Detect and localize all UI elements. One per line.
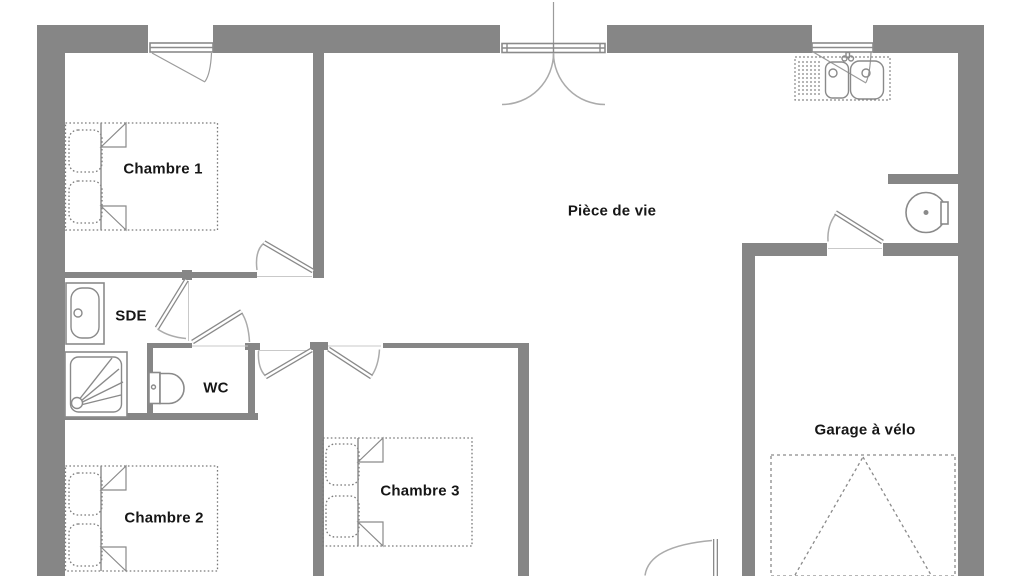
door-swing-arc xyxy=(158,329,187,339)
door-swing-arc xyxy=(242,313,250,343)
pillow xyxy=(69,130,102,172)
wall-segment xyxy=(607,25,812,53)
sink-bowl xyxy=(826,62,849,98)
door-chambre-1 xyxy=(256,243,313,277)
door-swing-arc xyxy=(258,351,265,376)
floor-plan: Chambre 1 Pièce de vie SDE WC Chambre 2 … xyxy=(0,0,1024,576)
shower xyxy=(65,352,127,417)
room-label-chambre-2: Chambre 2 xyxy=(124,510,203,527)
wall-segment xyxy=(958,25,984,576)
water-heater xyxy=(906,193,948,233)
door-swing-arc xyxy=(554,53,606,105)
door-wc xyxy=(192,312,250,347)
kitchen-double-sink xyxy=(795,53,890,101)
door-swing-arc xyxy=(256,243,264,270)
room-label-piece-de-vie: Pièce de vie xyxy=(568,203,656,220)
door-swing-arc xyxy=(372,350,380,377)
wall-segment xyxy=(383,343,518,348)
wall-segment xyxy=(888,174,958,184)
wall-segment xyxy=(313,53,324,278)
wall-segment xyxy=(65,272,257,278)
window-sash xyxy=(152,53,205,82)
wall-segment xyxy=(742,243,755,576)
washbasin xyxy=(66,283,104,344)
door-entrance-south xyxy=(645,539,716,576)
wall-segment xyxy=(147,343,192,348)
pillow xyxy=(326,444,359,485)
door-swing-arc xyxy=(502,53,554,105)
wall-segment xyxy=(182,270,192,280)
wall-segment xyxy=(248,343,255,418)
pillow xyxy=(69,524,102,566)
wall-segment xyxy=(310,342,328,350)
drainer-lines xyxy=(798,62,822,94)
wall-segment xyxy=(883,243,958,256)
floor-plan-drawing xyxy=(0,0,1024,576)
pillow xyxy=(69,473,102,515)
wall-segment xyxy=(37,25,65,576)
door-sde xyxy=(157,280,189,341)
wall-segment xyxy=(518,343,529,576)
room-label-chambre-1: Chambre 1 xyxy=(123,161,202,178)
door-swing-arc xyxy=(645,541,712,576)
wall-segment xyxy=(213,25,500,53)
room-label-wc: WC xyxy=(203,380,228,397)
bike-parking-zone xyxy=(771,455,955,576)
door-chambre-3 xyxy=(328,346,381,377)
room-label-chambre-3: Chambre 3 xyxy=(380,483,459,500)
door-chambre-2 xyxy=(258,350,312,377)
pillow xyxy=(326,496,359,537)
toilet xyxy=(149,373,184,404)
room-label-sde: SDE xyxy=(115,308,146,325)
door-garage xyxy=(828,213,883,249)
entry-double-door xyxy=(502,2,605,105)
walls xyxy=(37,25,984,576)
pillow xyxy=(69,181,102,223)
door-swing-arc xyxy=(828,214,836,242)
room-label-garage: Garage à vélo xyxy=(815,422,916,439)
window-chambre-1 xyxy=(150,43,213,82)
